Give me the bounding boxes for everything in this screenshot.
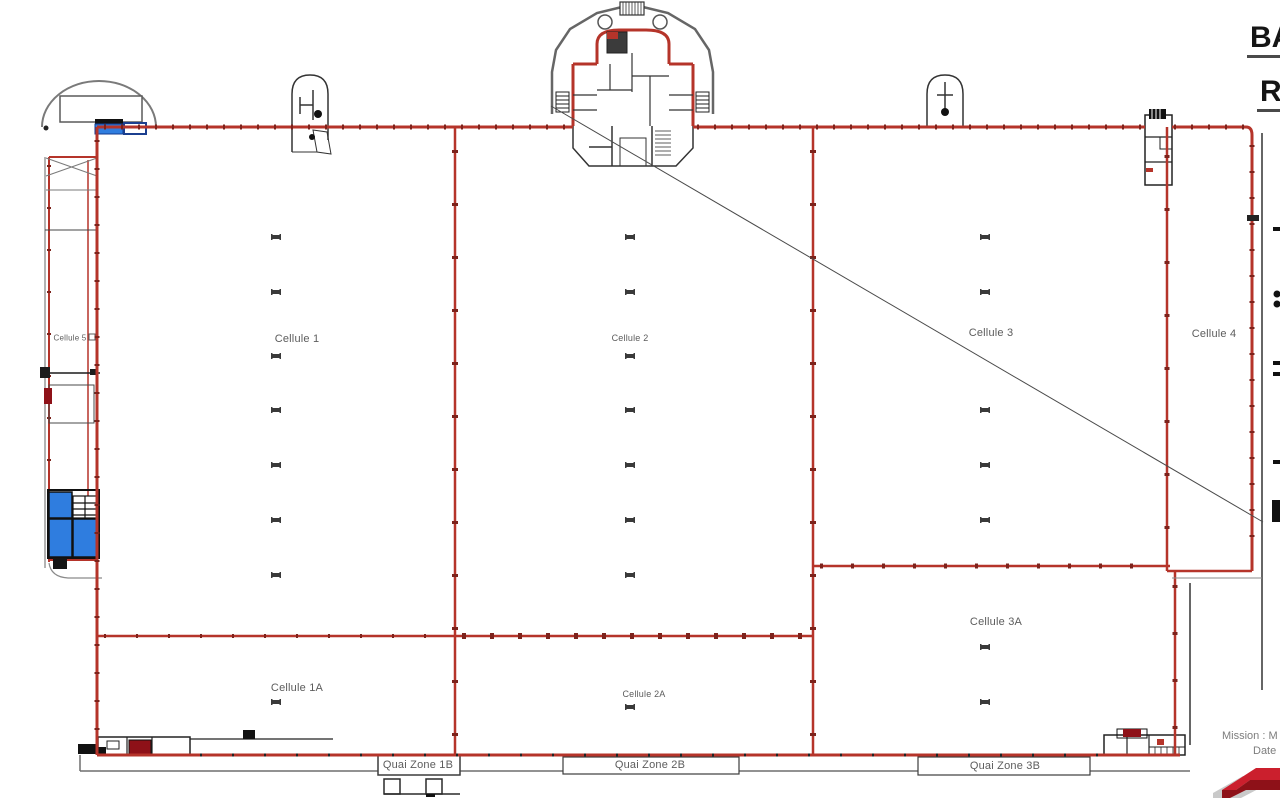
column-circle <box>598 15 612 29</box>
column-circle <box>653 15 667 29</box>
bottom-right-rooms <box>1104 729 1185 755</box>
cell-label-cellule-5: Cellule 5 <box>54 334 87 343</box>
quay-label-3b: Quai Zone 3B <box>970 760 1040 772</box>
legend-fragments <box>1272 227 1280 522</box>
cell-label-cellule-1a: Cellule 1A <box>271 682 323 694</box>
technical-rooms-blue <box>48 490 99 558</box>
cell-label-cellule-1: Cellule 1 <box>275 333 320 345</box>
title-block-line1: BA <box>1247 22 1280 58</box>
cell-label-cellule-3: Cellule 3 <box>969 327 1014 339</box>
office-red-arch <box>573 30 693 126</box>
floor-plan-drawing <box>0 0 1280 798</box>
frame-lines <box>1172 133 1262 745</box>
floor-plan-page: Cellule 1 Cellule 2 Cellule 3 Cellule 4 … <box>0 0 1280 798</box>
date-label: Date <box>1253 745 1276 757</box>
truck-dock-symbol <box>384 779 460 797</box>
company-logo <box>1213 768 1280 798</box>
cell-label-cellule-4: Cellule 4 <box>1192 328 1237 340</box>
cell-label-cellule-3a: Cellule 3A <box>970 616 1022 628</box>
cell-label-cellule-2: Cellule 2 <box>612 333 649 343</box>
wall-ticks <box>97 127 1252 755</box>
cell-label-cellule-2a: Cellule 2A <box>622 689 665 699</box>
left-annex-cellule-5 <box>40 157 102 578</box>
bottom-left-rooms <box>78 730 333 755</box>
office-lower <box>573 126 693 166</box>
stair-tower-right <box>927 75 963 126</box>
warehouse-walls <box>97 127 1252 755</box>
quay-label-2b: Quai Zone 2B <box>615 759 685 771</box>
door-lintel <box>95 119 123 124</box>
mission-label: Mission : M <box>1222 730 1278 742</box>
title-block-line2: R <box>1257 76 1280 112</box>
cellule-5-marker <box>89 334 95 340</box>
office-block <box>552 2 713 166</box>
quay-label-1b: Quai Zone 1B <box>383 759 453 771</box>
stair-tower-left <box>292 75 331 154</box>
